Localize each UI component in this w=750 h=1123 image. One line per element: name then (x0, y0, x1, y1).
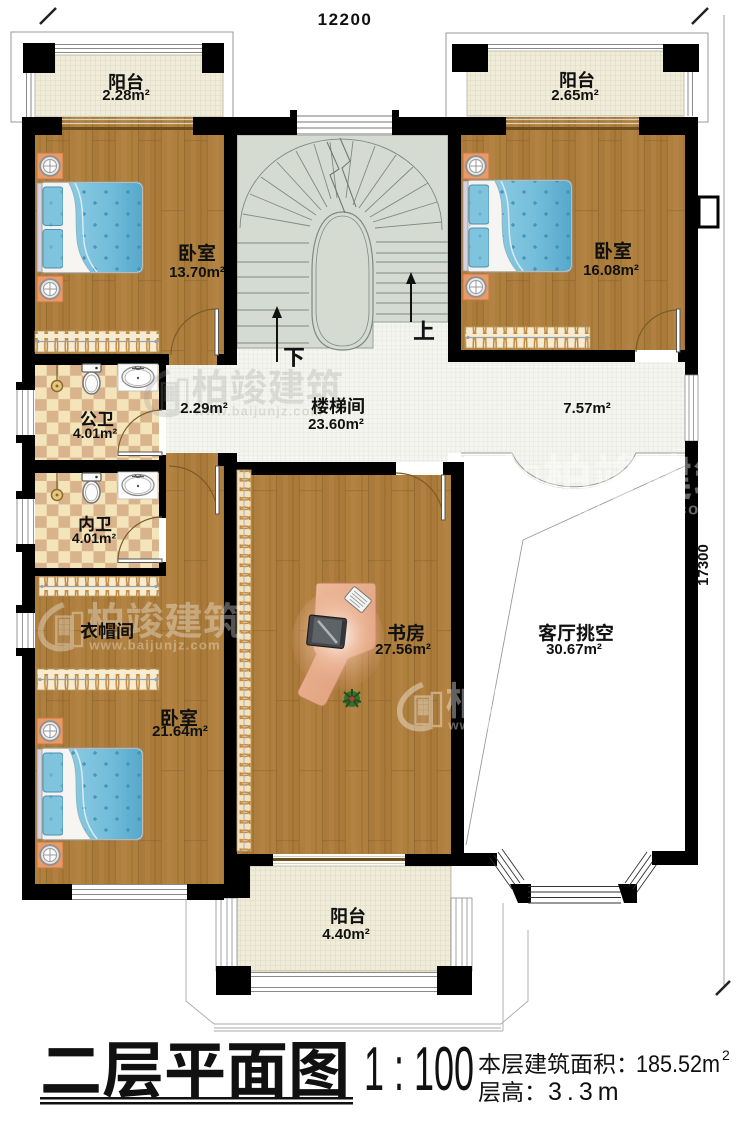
svg-text:4.01m²: 4.01m² (73, 425, 118, 441)
svg-text:23.60m²: 23.60m² (308, 416, 364, 433)
svg-text:21.64m²: 21.64m² (152, 723, 208, 740)
svg-text:2.28m²: 2.28m² (102, 87, 150, 104)
svg-text:www.baijunjz.com: www.baijunjz.com (546, 499, 717, 518)
svg-text:13.70m²: 13.70m² (169, 264, 225, 281)
svg-text:1 : 100: 1 : 100 (364, 1034, 474, 1104)
svg-text:27.56m²: 27.56m² (375, 641, 431, 658)
svg-text:4.40m²: 4.40m² (322, 926, 370, 943)
svg-text:7.57m²: 7.57m² (563, 400, 611, 417)
svg-text:www.baijunjz.com: www.baijunjz.com (88, 637, 221, 652)
svg-text:4.01m²: 4.01m² (72, 530, 117, 546)
svg-text:16.08m²: 16.08m² (583, 262, 639, 279)
svg-text:3.3m: 3.3m (548, 1078, 624, 1106)
svg-text:www.baijunjz.com: www.baijunjz.com (447, 717, 579, 732)
svg-text:12200: 12200 (318, 10, 373, 29)
svg-text:2.65m²: 2.65m² (551, 87, 599, 104)
svg-text:185.52m: 185.52m (636, 1050, 720, 1077)
svg-text:30.67m²: 30.67m² (546, 641, 602, 658)
svg-text:2: 2 (722, 1047, 730, 1063)
svg-text:17300: 17300 (695, 544, 712, 586)
svg-text:2.29m²: 2.29m² (180, 400, 228, 417)
